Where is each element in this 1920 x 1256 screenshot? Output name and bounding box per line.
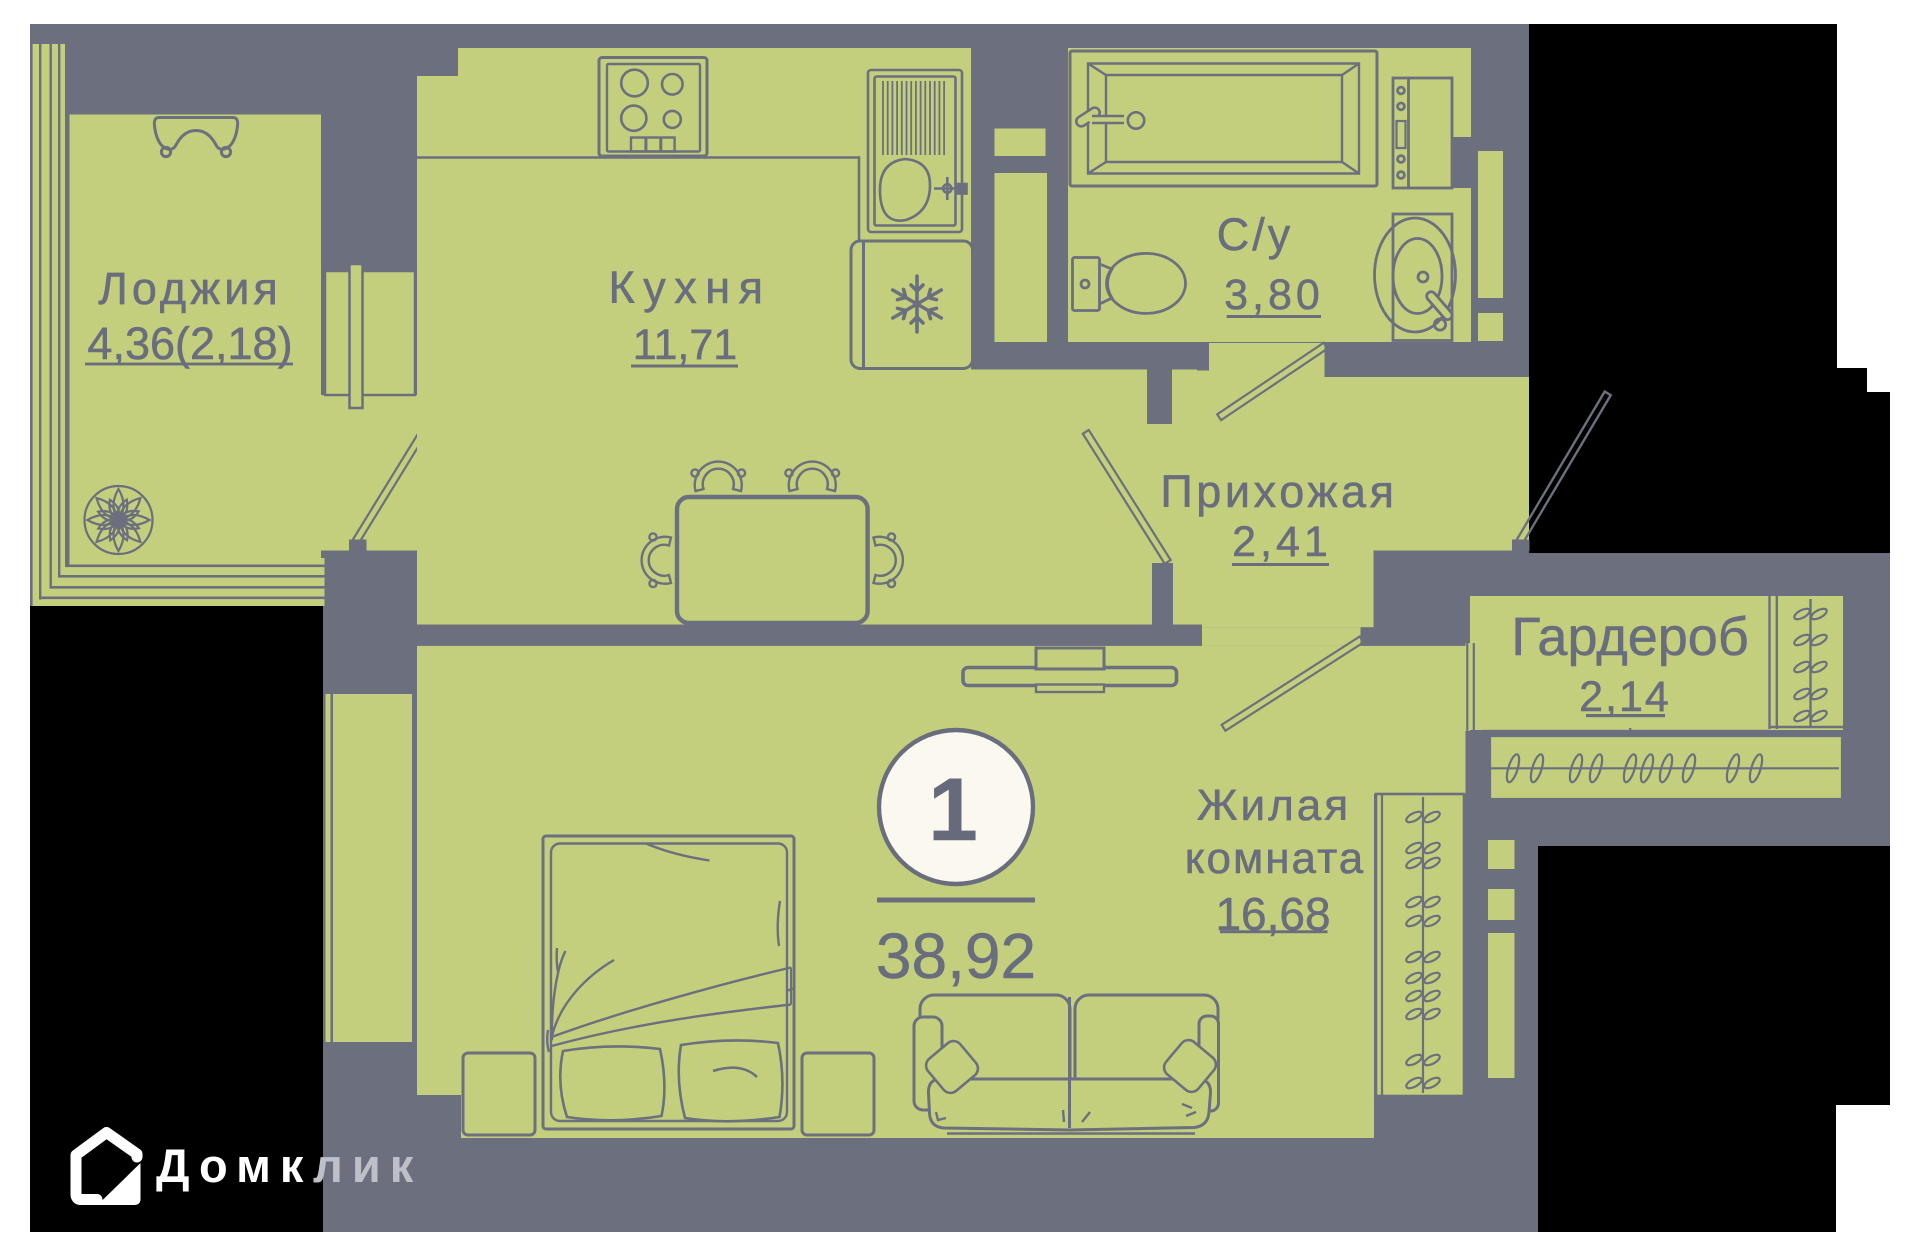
svg-text:комната: комната xyxy=(1185,834,1365,883)
svg-text:Домклик: Домклик xyxy=(156,1139,422,1192)
svg-text:2,41: 2,41 xyxy=(1232,518,1332,566)
svg-text:2,14: 2,14 xyxy=(1579,673,1671,721)
svg-text:Жилая: Жилая xyxy=(1197,781,1351,830)
svg-text:Кухня: Кухня xyxy=(609,262,772,313)
svg-text:С/у: С/у xyxy=(1217,209,1294,260)
svg-text:4,36(2,18): 4,36(2,18) xyxy=(87,318,292,369)
svg-text:1: 1 xyxy=(928,759,978,859)
svg-text:38,92: 38,92 xyxy=(876,920,1036,992)
svg-text:Лоджия: Лоджия xyxy=(98,263,281,314)
svg-text:3,80: 3,80 xyxy=(1224,271,1324,319)
svg-text:Гардероб: Гардероб xyxy=(1511,607,1749,667)
svg-text:11,71: 11,71 xyxy=(633,321,737,369)
svg-text:Прихожая: Прихожая xyxy=(1160,466,1397,517)
